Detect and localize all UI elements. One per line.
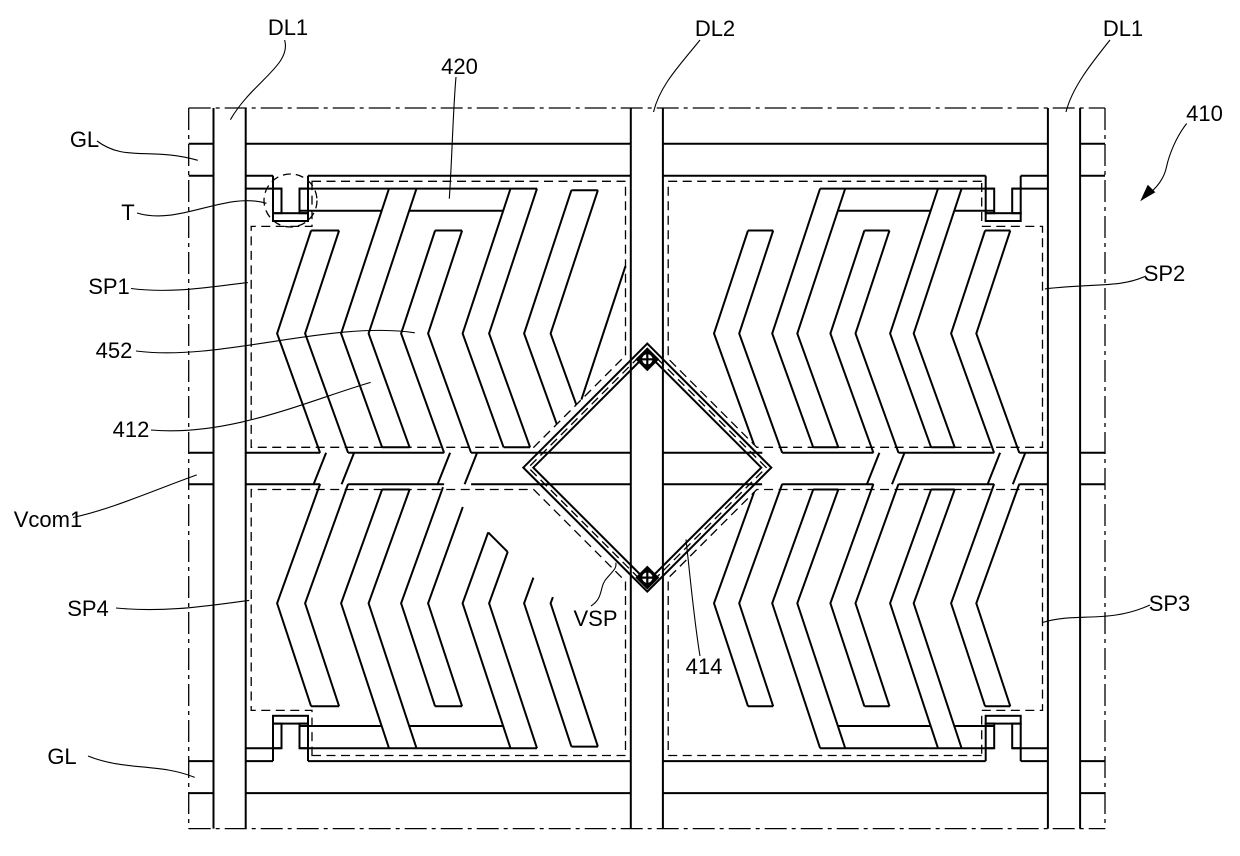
svg-text:SP3: SP3 bbox=[1149, 591, 1191, 616]
svg-text:DL1: DL1 bbox=[268, 15, 308, 40]
svg-text:414: 414 bbox=[686, 654, 723, 679]
svg-text:SP4: SP4 bbox=[67, 596, 109, 621]
svg-text:452: 452 bbox=[96, 338, 133, 363]
svg-text:412: 412 bbox=[113, 417, 150, 442]
svg-text:Vcom1: Vcom1 bbox=[14, 507, 82, 532]
svg-text:GL: GL bbox=[47, 744, 76, 769]
svg-text:DL1: DL1 bbox=[1103, 16, 1143, 41]
svg-text:DL2: DL2 bbox=[695, 16, 735, 41]
svg-text:GL: GL bbox=[70, 127, 99, 152]
svg-text:T: T bbox=[121, 200, 134, 225]
svg-text:SP2: SP2 bbox=[1144, 261, 1186, 286]
svg-text:SP1: SP1 bbox=[88, 274, 130, 299]
svg-text:420: 420 bbox=[441, 54, 478, 79]
svg-text:VSP: VSP bbox=[573, 606, 617, 631]
svg-text:410: 410 bbox=[1186, 101, 1223, 126]
